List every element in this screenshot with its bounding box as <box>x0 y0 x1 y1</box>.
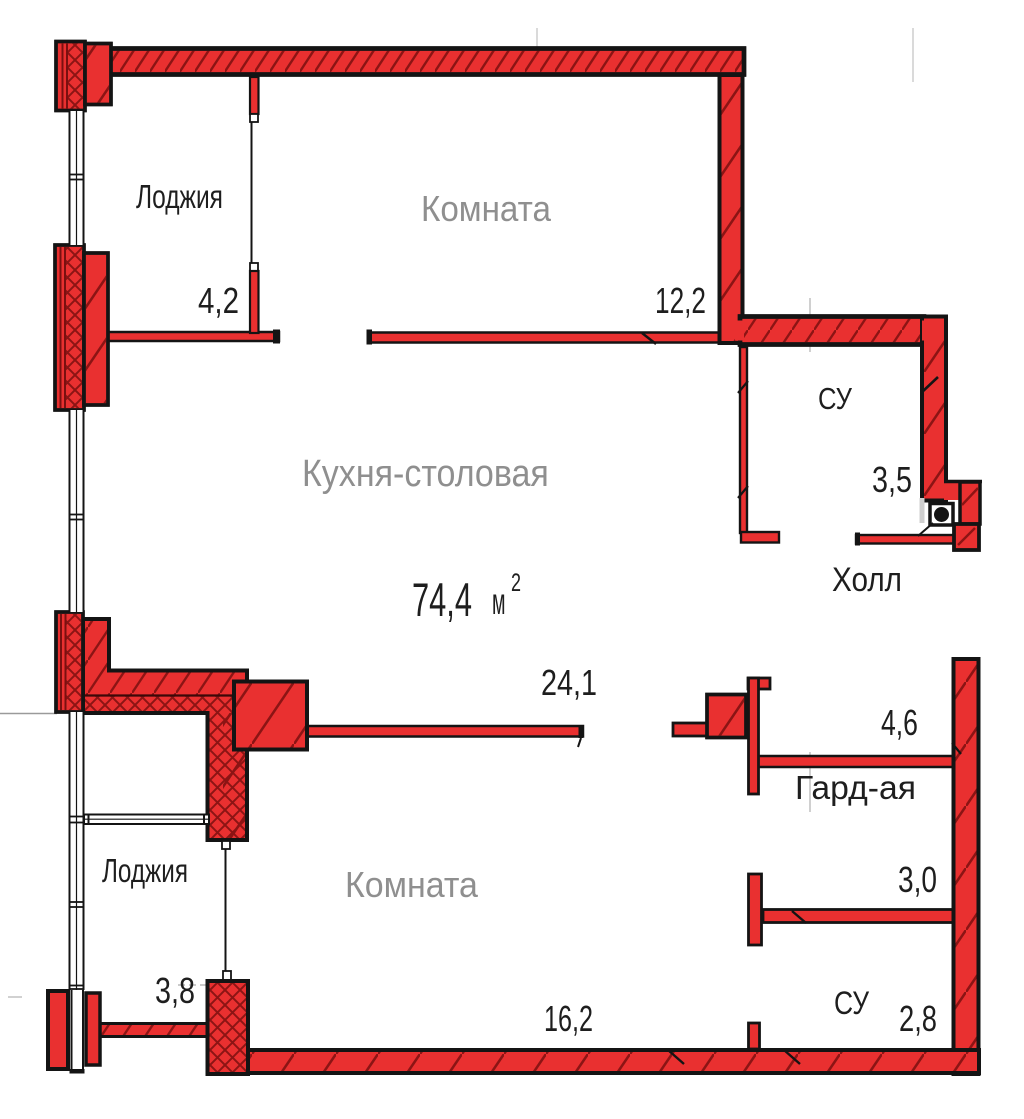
svg-text:4,6: 4,6 <box>881 702 918 743</box>
svg-text:2,8: 2,8 <box>899 998 937 1039</box>
svg-text:Лоджия: Лоджия <box>136 180 223 216</box>
svg-text:74,4: 74,4 <box>412 575 472 627</box>
svg-text:Лоджия: Лоджия <box>102 854 188 890</box>
svg-text:2: 2 <box>511 568 521 597</box>
svg-text:24,1: 24,1 <box>541 663 597 703</box>
svg-text:Комната: Комната <box>421 190 552 230</box>
svg-text:Кухня-столовая: Кухня-столовая <box>302 451 549 494</box>
svg-text:Комната: Комната <box>345 865 478 905</box>
svg-text:СУ: СУ <box>818 382 853 417</box>
svg-text:Холл: Холл <box>832 560 902 598</box>
svg-text:12,2: 12,2 <box>655 281 706 321</box>
svg-text:м: м <box>492 582 505 623</box>
svg-text:3,0: 3,0 <box>898 860 937 900</box>
svg-text:Гард-ая: Гард-ая <box>795 770 916 807</box>
svg-text:4,2: 4,2 <box>198 280 239 320</box>
svg-text:3,5: 3,5 <box>872 460 912 500</box>
svg-text:СУ: СУ <box>834 986 869 1022</box>
svg-text:16,2: 16,2 <box>544 999 593 1040</box>
svg-text:3,8: 3,8 <box>155 971 195 1011</box>
